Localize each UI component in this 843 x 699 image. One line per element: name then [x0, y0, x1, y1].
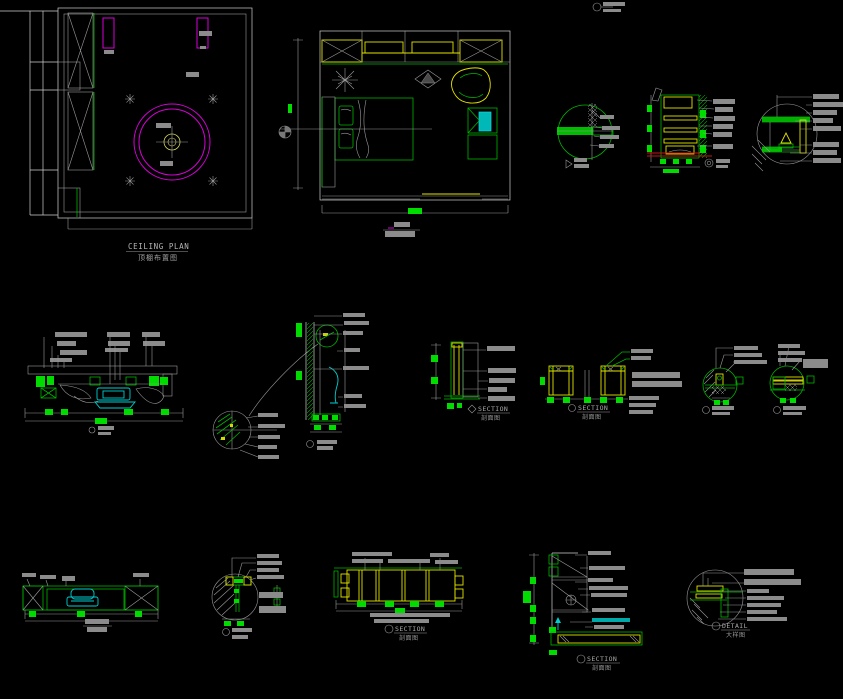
label-block — [813, 150, 837, 155]
label-block — [374, 619, 429, 623]
label-block — [813, 94, 839, 99]
label-block — [734, 353, 762, 357]
floor-plan[interactable] — [279, 31, 510, 237]
circle-marker — [566, 595, 576, 605]
floor-plan-title — [383, 222, 420, 237]
label-block — [258, 413, 278, 417]
label-block — [813, 118, 833, 123]
detail-b-callout — [705, 159, 730, 168]
room-outline — [58, 8, 252, 218]
label-block — [588, 578, 613, 582]
label-block — [160, 161, 173, 166]
detail-circle-3[interactable] — [212, 554, 286, 639]
label-block — [258, 445, 277, 449]
label-block — [257, 554, 279, 558]
ceiling-light-fixture[interactable] — [103, 18, 114, 48]
label-block — [715, 107, 733, 112]
ceiling-slab — [28, 366, 177, 374]
label-block — [600, 115, 614, 119]
label-block — [370, 613, 450, 617]
detail-circle-2[interactable] — [770, 344, 828, 415]
callout-circle-icon — [703, 407, 710, 414]
detail-a-callout — [566, 158, 589, 168]
label-block — [603, 2, 625, 6]
callout-circle-icon — [705, 159, 713, 167]
callout-circle-icon — [593, 3, 601, 11]
window-band-lines — [320, 31, 510, 62]
label-block — [344, 404, 366, 408]
section-wardrobe-title: SECTION 剖面图 — [577, 655, 620, 672]
label-block — [107, 332, 130, 337]
base-board — [312, 414, 340, 421]
flag-marker — [652, 88, 662, 101]
label-block — [588, 551, 611, 555]
ceiling-plan-title: CEILING PLAN 顶棚布置图 — [126, 242, 189, 262]
callout-circle-icon — [569, 405, 576, 412]
plan-sofa[interactable] — [22, 573, 158, 632]
label-block — [632, 381, 682, 387]
wardrobe-box — [412, 42, 453, 53]
callout-circle-icon — [307, 441, 314, 448]
label-block — [258, 435, 280, 439]
label-block — [632, 372, 680, 378]
label-block — [108, 341, 130, 346]
section-title-en: SECTION — [395, 625, 425, 633]
ceiling-plan-title-en: CEILING PLAN — [128, 242, 189, 251]
left-dimension — [279, 38, 303, 190]
label-block — [344, 394, 362, 398]
detail-circle-1-callout — [703, 406, 735, 415]
label-block — [430, 553, 449, 557]
callout-circle-icon — [223, 629, 230, 636]
hatch-lines — [752, 140, 770, 171]
label-block — [713, 132, 732, 137]
detail-title-en: DETAIL — [722, 622, 748, 630]
label-block — [343, 313, 365, 317]
label-block — [344, 348, 360, 352]
label-block — [734, 346, 758, 350]
label-block — [156, 123, 171, 128]
label-block — [388, 559, 430, 563]
box-2 — [601, 366, 625, 395]
tv-cabinet[interactable] — [468, 108, 497, 159]
label-block — [629, 396, 659, 400]
label-block-cyan — [592, 618, 630, 622]
plant[interactable] — [332, 68, 358, 92]
label-block — [629, 403, 656, 407]
label-block — [778, 351, 805, 355]
diamond-icon — [468, 405, 476, 413]
base-cabinet — [551, 632, 642, 645]
headboard — [322, 97, 335, 187]
triangle-symbol — [781, 133, 791, 143]
label-block — [591, 593, 627, 597]
label-block — [603, 9, 621, 12]
label-block — [488, 396, 515, 401]
label-block — [713, 99, 735, 104]
label-block — [631, 356, 651, 360]
label-block — [589, 586, 628, 590]
boxes-dimensions — [545, 397, 628, 403]
label-block — [488, 368, 516, 373]
section-cove-callout — [89, 426, 114, 435]
label-block — [600, 135, 619, 139]
label-block — [713, 144, 733, 149]
molding-profile — [329, 367, 338, 403]
section-wardrobe[interactable]: SECTION 剖面图 — [523, 551, 642, 672]
ceiling-plan[interactable]: CEILING PLAN 顶棚布置图 — [0, 8, 252, 262]
section-wall-title: SECTION 剖面图 — [468, 405, 510, 422]
label-block — [747, 589, 769, 593]
section-title-zh: 剖面图 — [592, 664, 612, 672]
detail-circle-4-title: DETAIL 大样图 — [712, 622, 750, 639]
label-block — [55, 332, 87, 337]
sheet-callout — [593, 2, 625, 12]
label-block — [133, 573, 149, 577]
label-block — [747, 603, 781, 607]
label-block — [734, 360, 767, 364]
label-block — [352, 552, 392, 556]
bottom-dimension — [322, 205, 508, 214]
drawing-area[interactable]: CEILING PLAN 顶棚布置图 — [0, 0, 843, 699]
detail-circle-1[interactable] — [703, 346, 768, 415]
cabinet-top-box — [664, 97, 692, 108]
label-block — [714, 116, 735, 121]
label-block — [186, 72, 199, 77]
callout-circle-icon — [385, 625, 393, 633]
armchair[interactable] — [452, 68, 491, 103]
section-title-en: SECTION — [587, 655, 617, 663]
detail-b[interactable] — [647, 88, 735, 173]
label-block — [57, 341, 76, 346]
label-block — [40, 575, 56, 579]
diamond-marker — [415, 70, 441, 88]
label-block — [813, 102, 843, 107]
section-cove[interactable] — [25, 332, 183, 435]
label-block — [258, 455, 279, 459]
section-boxes[interactable]: SECTION 剖面图 — [540, 349, 682, 421]
label-block — [22, 573, 36, 577]
label-block — [343, 331, 363, 335]
section-title-zh: 剖面图 — [481, 414, 501, 422]
center-lamp[interactable] — [156, 126, 188, 158]
label-block — [259, 606, 286, 613]
section-title-zh: 剖面图 — [399, 634, 419, 642]
section-cabinet-title: SECTION 剖面图 — [385, 625, 427, 642]
dimension-bracket — [68, 218, 252, 229]
label-block — [257, 575, 284, 579]
section-boxes-title: SECTION 剖面图 — [569, 404, 611, 421]
label-block — [631, 349, 653, 353]
shelf — [664, 139, 697, 143]
label-block — [744, 569, 794, 575]
label-block — [599, 144, 614, 148]
label-block — [592, 608, 625, 612]
label-block — [602, 126, 620, 130]
wall-lines — [0, 11, 58, 215]
label-block — [259, 592, 283, 598]
shelf — [664, 128, 697, 132]
ceiling-plan-title-zh: 顶棚布置图 — [138, 253, 178, 262]
section-title-zh: 剖面图 — [582, 413, 602, 421]
label-block — [199, 31, 212, 36]
label-block — [778, 358, 802, 362]
corner-detail-circle[interactable] — [213, 411, 285, 459]
box-1 — [549, 366, 573, 395]
section-title-en: SECTION — [578, 404, 608, 412]
label-block — [487, 346, 515, 351]
room-inner-outline — [64, 14, 246, 212]
detail-curved[interactable] — [213, 313, 369, 459]
label-block — [104, 50, 114, 54]
label-block — [60, 350, 87, 355]
section-cabinet[interactable]: SECTION 剖面图 — [334, 552, 463, 642]
label-block — [489, 378, 515, 383]
label-block — [105, 348, 128, 352]
label-block — [803, 359, 828, 368]
label-block — [62, 576, 75, 581]
label-block — [629, 410, 653, 414]
bottom-wall — [322, 196, 508, 199]
label-block — [813, 158, 841, 163]
label-block — [352, 559, 383, 563]
detail-circle-2-callout — [774, 406, 807, 415]
detail-c[interactable] — [752, 94, 843, 171]
label-block — [200, 46, 206, 49]
label-block — [257, 568, 279, 572]
label-block — [344, 321, 369, 325]
label-block — [258, 424, 285, 428]
wardrobe-box — [365, 42, 403, 53]
detail-title-zh: 大样图 — [726, 631, 746, 639]
detail-curved-dimensions — [307, 424, 343, 450]
label-block — [488, 387, 507, 392]
wardrobe-x-panel — [68, 13, 93, 170]
label-block — [343, 366, 369, 370]
label-block — [813, 142, 839, 147]
label-block — [747, 610, 777, 614]
label-block — [713, 124, 733, 129]
label-block — [594, 625, 624, 629]
label-block — [744, 579, 801, 585]
label-block — [813, 110, 837, 115]
label-block — [747, 617, 787, 621]
sofa[interactable] — [67, 589, 98, 606]
label-block — [589, 566, 625, 570]
detail-a[interactable] — [557, 103, 620, 168]
label-block — [257, 561, 282, 565]
cabinet-dimensions — [336, 600, 462, 614]
detail-circle-3-callout — [223, 628, 253, 639]
detail-circle-4[interactable]: DETAIL 大样图 — [687, 569, 801, 639]
plan-sofa-title — [83, 619, 112, 632]
shelf — [664, 116, 697, 120]
label-block — [435, 560, 458, 564]
label-block — [778, 344, 800, 348]
callout-circle-icon — [577, 655, 585, 663]
cove-dimensions — [25, 408, 183, 424]
label-block — [142, 332, 160, 337]
label-block — [747, 596, 784, 600]
cad-viewport: CEILING PLAN 顶棚布置图 — [0, 0, 843, 699]
pendant-light[interactable] — [95, 388, 135, 408]
label-block — [813, 126, 841, 131]
section-title-en: SECTION — [478, 405, 508, 413]
section-wall[interactable]: SECTION 剖面图 — [431, 342, 516, 422]
label-block — [50, 358, 72, 362]
callout-circle-icon — [774, 407, 781, 414]
